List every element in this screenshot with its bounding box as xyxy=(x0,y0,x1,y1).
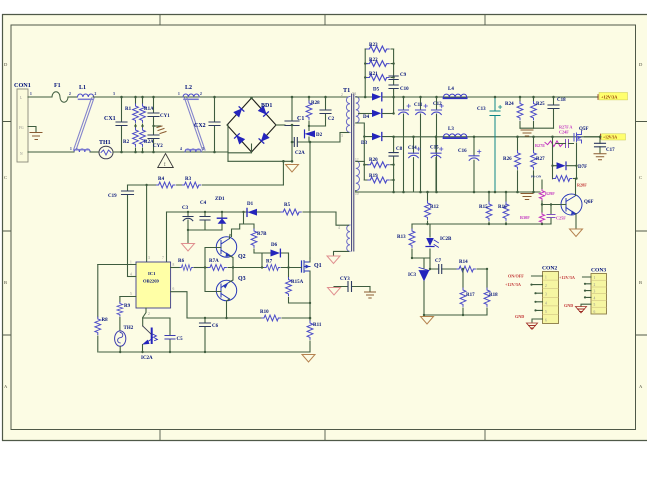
svg-text:1: 1 xyxy=(70,147,72,151)
svg-text:CON1: CON1 xyxy=(14,82,31,89)
svg-text:C17: C17 xyxy=(606,148,615,153)
svg-text:12: 12 xyxy=(355,158,359,162)
svg-text:R13: R13 xyxy=(397,235,406,240)
svg-text:R29F: R29F xyxy=(545,191,555,196)
svg-text:R18: R18 xyxy=(489,293,498,298)
svg-text:+12V/3A: +12V/3A xyxy=(559,275,575,280)
svg-text:R28: R28 xyxy=(311,101,320,106)
svg-text:C9: C9 xyxy=(400,73,407,78)
svg-text:1: 1 xyxy=(130,261,132,265)
svg-text:C4: C4 xyxy=(200,201,207,206)
svg-text:IC1: IC1 xyxy=(148,271,156,276)
svg-text:4: 4 xyxy=(130,273,132,277)
svg-text:3: 3 xyxy=(202,147,204,151)
svg-text:D2: D2 xyxy=(316,133,323,138)
svg-text:R30F: R30F xyxy=(520,215,530,220)
svg-text:C16: C16 xyxy=(458,149,467,154)
svg-text:GND: GND xyxy=(515,314,524,319)
svg-text:CX1: CX1 xyxy=(104,116,116,122)
svg-text:C25F: C25F xyxy=(556,216,566,221)
svg-text:R15: R15 xyxy=(479,205,488,210)
svg-text:R24: R24 xyxy=(505,102,514,107)
svg-text:2: 2 xyxy=(69,92,71,96)
svg-text:R3: R3 xyxy=(185,177,192,182)
svg-text:L2: L2 xyxy=(185,85,192,91)
svg-text:4: 4 xyxy=(545,301,547,305)
svg-text:IC2B: IC2B xyxy=(440,237,452,242)
svg-text:R15A: R15A xyxy=(291,280,304,285)
svg-text:C10: C10 xyxy=(400,87,409,92)
svg-text:3: 3 xyxy=(594,290,596,294)
svg-text:C8: C8 xyxy=(396,147,403,152)
svg-text:1: 1 xyxy=(178,92,180,96)
svg-text:Q2: Q2 xyxy=(238,254,246,260)
svg-text:ON/OFF: ON/OFF xyxy=(508,274,524,279)
svg-text:7: 7 xyxy=(162,256,164,260)
svg-text:1: 1 xyxy=(30,92,32,96)
svg-text:6: 6 xyxy=(173,287,175,291)
svg-text:2: 2 xyxy=(200,92,202,96)
svg-text:Q3: Q3 xyxy=(238,276,246,282)
svg-text:+12V/3A: +12V/3A xyxy=(601,94,618,99)
svg-text:4: 4 xyxy=(338,226,340,230)
svg-text:IC3: IC3 xyxy=(408,273,417,278)
svg-text:R21: R21 xyxy=(369,72,378,77)
svg-text:TH1: TH1 xyxy=(99,140,111,146)
svg-text:3: 3 xyxy=(341,134,343,138)
svg-text:D3: D3 xyxy=(361,141,368,146)
svg-text:C7: C7 xyxy=(435,259,442,264)
svg-text:7A: 7A xyxy=(352,92,357,96)
svg-text:R5: R5 xyxy=(284,203,291,208)
svg-text:1: 1 xyxy=(545,276,547,280)
svg-text:CON2: CON2 xyxy=(542,266,557,272)
svg-text:L4: L4 xyxy=(448,87,454,92)
svg-text:D1: D1 xyxy=(247,202,254,207)
svg-text:C19: C19 xyxy=(108,194,117,199)
svg-text:R23: R23 xyxy=(369,43,378,48)
svg-text:C13: C13 xyxy=(477,107,486,112)
svg-text:5: 5 xyxy=(130,292,132,296)
svg-text:Q1: Q1 xyxy=(314,263,322,269)
svg-text:6: 6 xyxy=(594,310,596,314)
svg-text:L3: L3 xyxy=(448,127,454,132)
svg-text:C15: C15 xyxy=(430,146,439,151)
svg-text:8: 8 xyxy=(173,263,175,267)
svg-text:D5: D5 xyxy=(373,88,380,93)
svg-text:BD1: BD1 xyxy=(261,103,272,109)
svg-text:ZD1: ZD1 xyxy=(215,197,225,202)
svg-text:+12V/3A: +12V/3A xyxy=(505,282,521,287)
svg-text:10: 10 xyxy=(355,192,359,196)
svg-text:3: 3 xyxy=(148,256,150,260)
svg-text:IC2A: IC2A xyxy=(141,356,153,361)
svg-text:C12: C12 xyxy=(433,102,442,107)
svg-text:1: 1 xyxy=(594,276,596,280)
svg-text:T1: T1 xyxy=(343,87,350,94)
svg-text:B: B xyxy=(639,280,642,285)
svg-text:3: 3 xyxy=(113,92,115,96)
svg-text:C: C xyxy=(639,175,642,180)
svg-text:Q5F: Q5F xyxy=(579,127,588,132)
svg-text:F1: F1 xyxy=(54,83,61,89)
svg-text:N: N xyxy=(20,152,23,156)
svg-text:2: 2 xyxy=(148,312,150,316)
svg-text:R8: R8 xyxy=(102,318,109,323)
svg-text:R1: R1 xyxy=(125,107,132,112)
svg-text:GND: GND xyxy=(564,303,573,308)
svg-text:R9: R9 xyxy=(124,304,131,309)
svg-text:5: 5 xyxy=(545,310,547,314)
svg-text:3: 3 xyxy=(545,293,547,297)
svg-text:R7A: R7A xyxy=(209,259,219,264)
svg-text:CX2: CX2 xyxy=(194,123,206,129)
svg-text:4: 4 xyxy=(180,147,182,151)
svg-text:R14: R14 xyxy=(459,260,468,265)
svg-text:PS-ON: PS-ON xyxy=(531,175,542,179)
svg-text:2: 2 xyxy=(545,284,547,288)
svg-text:R16: R16 xyxy=(498,205,507,210)
svg-text:FG: FG xyxy=(19,126,24,130)
svg-text:R4: R4 xyxy=(158,177,165,182)
svg-text:2: 2 xyxy=(341,93,343,97)
svg-text:C3: C3 xyxy=(182,206,189,211)
svg-text:R2: R2 xyxy=(123,140,130,145)
svg-text:TH2: TH2 xyxy=(124,326,134,331)
svg-text:CY1: CY1 xyxy=(160,114,170,119)
svg-text:D4: D4 xyxy=(363,115,370,120)
svg-text:C18: C18 xyxy=(557,98,566,103)
svg-text:D7F: D7F xyxy=(578,165,587,170)
svg-text:C6: C6 xyxy=(212,324,219,329)
svg-text:C5: C5 xyxy=(177,337,184,342)
svg-text:R12: R12 xyxy=(430,205,439,210)
svg-text:R19: R19 xyxy=(369,174,378,179)
svg-text:L: L xyxy=(20,96,22,100)
svg-text:1: 1 xyxy=(354,123,356,127)
svg-text:C1: C1 xyxy=(297,116,304,122)
svg-text:R25: R25 xyxy=(536,102,545,107)
svg-text:C14: C14 xyxy=(408,146,417,151)
svg-text:CON3: CON3 xyxy=(591,268,606,274)
svg-text:C2A: C2A xyxy=(295,151,305,156)
svg-text:R28F: R28F xyxy=(577,183,587,188)
svg-text:2: 2 xyxy=(95,92,97,96)
svg-text:6: 6 xyxy=(545,319,547,323)
svg-text:R20: R20 xyxy=(369,158,378,163)
svg-text:C24F: C24F xyxy=(559,130,569,135)
svg-text:CY3: CY3 xyxy=(340,277,350,282)
svg-text:R6: R6 xyxy=(178,259,185,264)
svg-text:OB2269: OB2269 xyxy=(143,279,160,284)
svg-text:B: B xyxy=(4,280,7,285)
svg-text:R27E: R27E xyxy=(535,143,545,148)
svg-text:R22: R22 xyxy=(369,58,378,63)
svg-text:R26: R26 xyxy=(503,157,512,162)
svg-text:Q6F: Q6F xyxy=(584,200,593,205)
svg-text:5: 5 xyxy=(594,303,596,307)
svg-text:R11: R11 xyxy=(313,323,322,328)
svg-text:C2: C2 xyxy=(328,117,335,122)
svg-text:R27: R27 xyxy=(536,157,545,162)
svg-text:CY2: CY2 xyxy=(153,144,163,149)
svg-text:R7: R7 xyxy=(266,260,273,265)
svg-text:R7B: R7B xyxy=(257,232,267,237)
svg-text:R17: R17 xyxy=(466,293,475,298)
svg-text:2: 2 xyxy=(594,283,596,287)
svg-text:C11: C11 xyxy=(414,103,423,108)
svg-text:L1: L1 xyxy=(79,85,86,91)
svg-text:D6: D6 xyxy=(271,243,278,248)
svg-text:R10: R10 xyxy=(260,310,269,315)
svg-text:R1A: R1A xyxy=(144,107,154,112)
svg-text:+12V/3A: +12V/3A xyxy=(603,136,617,140)
svg-text:4: 4 xyxy=(594,296,596,300)
svg-text:C: C xyxy=(4,175,7,180)
